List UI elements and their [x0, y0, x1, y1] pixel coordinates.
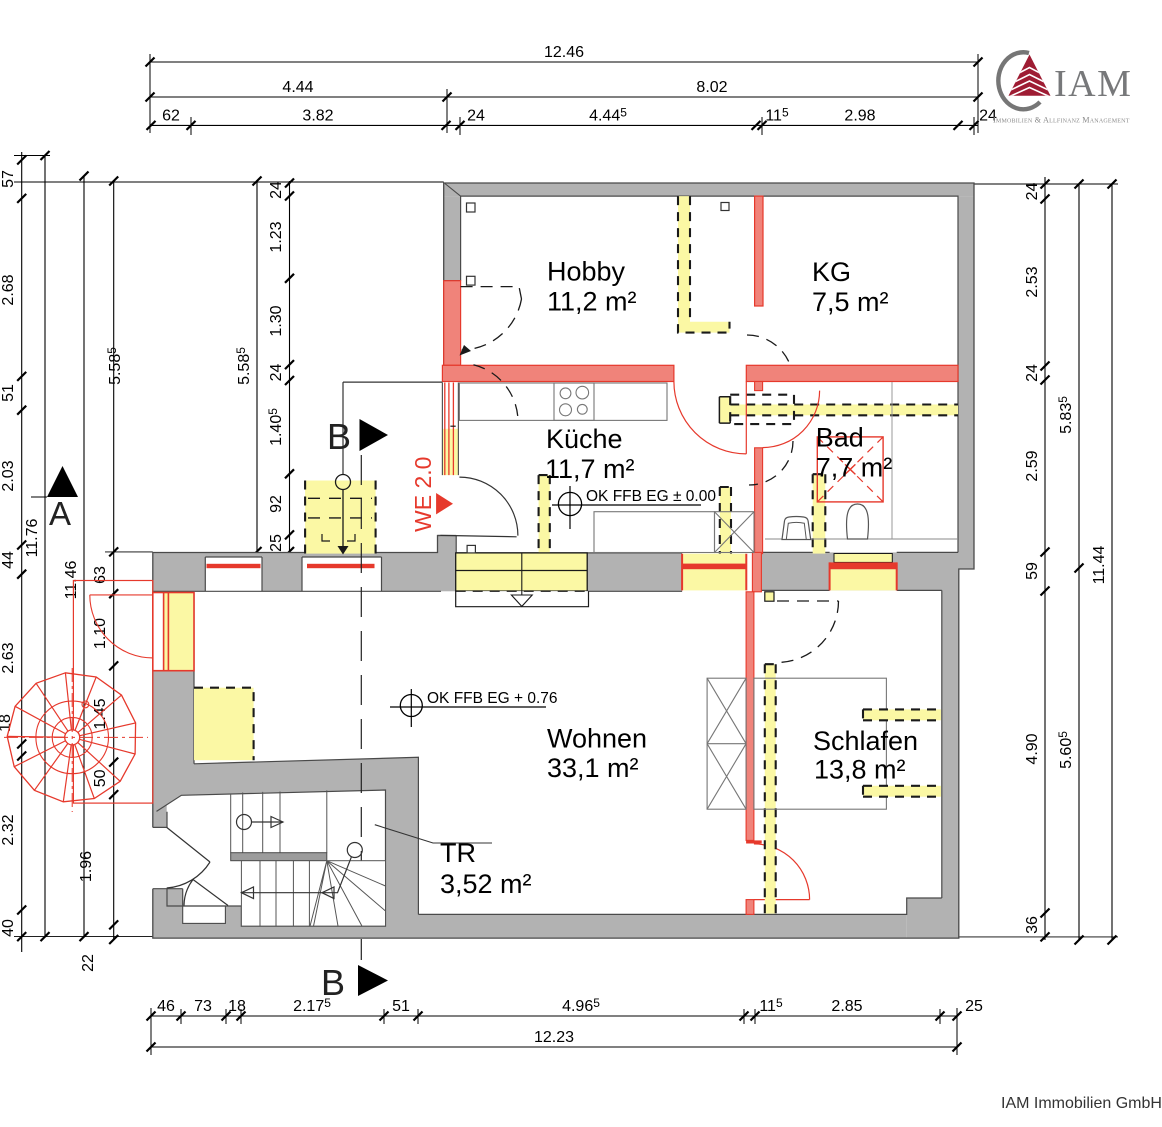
svg-text:25: 25	[268, 534, 285, 552]
svg-text:2.68: 2.68	[0, 274, 17, 305]
svg-text:IAM Immobilien GmbH: IAM Immobilien GmbH	[1001, 1095, 1162, 1112]
svg-text:11,7 m²: 11,7 m²	[545, 454, 635, 484]
svg-text:TR: TR	[440, 838, 476, 868]
svg-text:25: 25	[965, 998, 983, 1015]
svg-text:51: 51	[0, 384, 17, 402]
svg-text:Immobilien & Allfinanz Managem: Immobilien & Allfinanz Management	[993, 116, 1130, 125]
svg-text:11.76: 11.76	[24, 518, 41, 557]
svg-text:Wohnen: Wohnen	[547, 724, 647, 754]
svg-text:92: 92	[268, 495, 285, 513]
svg-text:57: 57	[0, 170, 17, 188]
svg-text:62: 62	[162, 107, 180, 124]
svg-text:24: 24	[467, 107, 485, 124]
svg-text:2.98: 2.98	[844, 107, 875, 124]
svg-text:46: 46	[157, 998, 175, 1015]
svg-text:18: 18	[228, 998, 246, 1015]
svg-text:59: 59	[1024, 562, 1041, 580]
svg-text:3.82: 3.82	[302, 107, 333, 124]
svg-text:44: 44	[0, 551, 17, 569]
svg-text:40: 40	[0, 919, 17, 937]
svg-text:4.44: 4.44	[282, 79, 313, 96]
svg-text:11.44: 11.44	[1091, 545, 1108, 584]
svg-text:1.23: 1.23	[268, 221, 285, 252]
svg-text:Schlafen: Schlafen	[813, 726, 918, 756]
svg-text:B: B	[327, 416, 351, 457]
svg-text:50: 50	[92, 769, 109, 787]
svg-text:63: 63	[92, 566, 109, 584]
svg-text:B: B	[321, 962, 345, 1003]
svg-text:2.53: 2.53	[1024, 266, 1041, 297]
svg-text:2.03: 2.03	[0, 460, 17, 491]
svg-text:OK FFB EG ± 0.00: OK FFB EG ± 0.00	[586, 488, 716, 505]
svg-text:Bad: Bad	[816, 423, 864, 453]
svg-text:11,2 m²: 11,2 m²	[547, 287, 637, 317]
svg-text:7,7 m²: 7,7 m²	[816, 453, 893, 483]
svg-text:WE 2.0: WE 2.0	[410, 457, 436, 532]
svg-text:KG: KG	[812, 257, 851, 287]
svg-text:22: 22	[80, 954, 97, 972]
svg-text:A: A	[49, 495, 71, 532]
svg-text:1.96: 1.96	[78, 851, 95, 882]
svg-text:Küche: Küche	[546, 424, 623, 454]
svg-text:Hobby: Hobby	[547, 257, 626, 287]
svg-text:51: 51	[392, 998, 410, 1015]
svg-text:2.32: 2.32	[0, 814, 17, 845]
svg-text:2.59: 2.59	[1024, 450, 1041, 481]
svg-text:3,52 m²: 3,52 m²	[440, 869, 532, 899]
svg-text:12.46: 12.46	[544, 44, 584, 61]
svg-text:1.10: 1.10	[92, 618, 109, 649]
svg-text:2.63: 2.63	[0, 642, 17, 673]
svg-text:24: 24	[1024, 364, 1041, 382]
svg-text:33,1 m²: 33,1 m²	[547, 753, 639, 783]
svg-text:IAM: IAM	[1054, 63, 1132, 105]
svg-text:1.30: 1.30	[268, 305, 285, 336]
svg-text:4.90: 4.90	[1024, 733, 1041, 764]
svg-text:2.85: 2.85	[831, 998, 862, 1015]
svg-text:24: 24	[268, 364, 285, 382]
svg-text:7,5 m²: 7,5 m²	[812, 287, 889, 317]
svg-text:8.02: 8.02	[696, 79, 727, 96]
svg-text:24: 24	[268, 181, 285, 199]
svg-text:13,8 m²: 13,8 m²	[814, 755, 906, 785]
svg-text:36: 36	[1024, 916, 1041, 934]
svg-text:OK FFB EG + 0.76: OK FFB EG + 0.76	[427, 690, 558, 707]
svg-text:12.23: 12.23	[534, 1029, 574, 1046]
svg-text:24: 24	[1024, 183, 1041, 201]
svg-text:73: 73	[194, 998, 212, 1015]
